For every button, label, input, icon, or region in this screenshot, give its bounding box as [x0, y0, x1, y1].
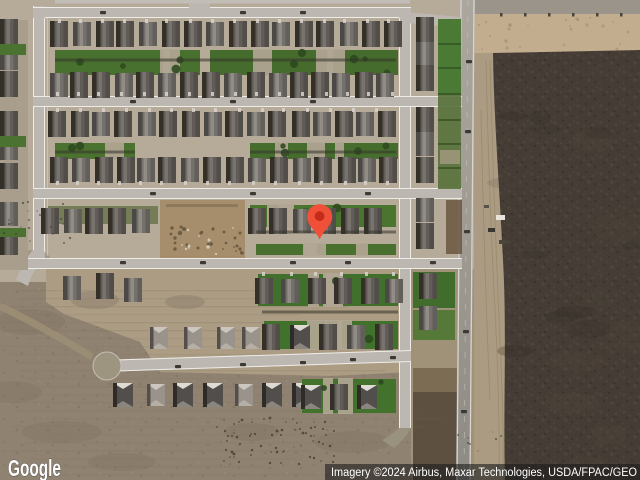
- svg-text:Google: Google: [8, 455, 61, 480]
- svg-text:Imagery ©2024 Airbus, Maxar Te: Imagery ©2024 Airbus, Maxar Technologies…: [331, 467, 637, 479]
